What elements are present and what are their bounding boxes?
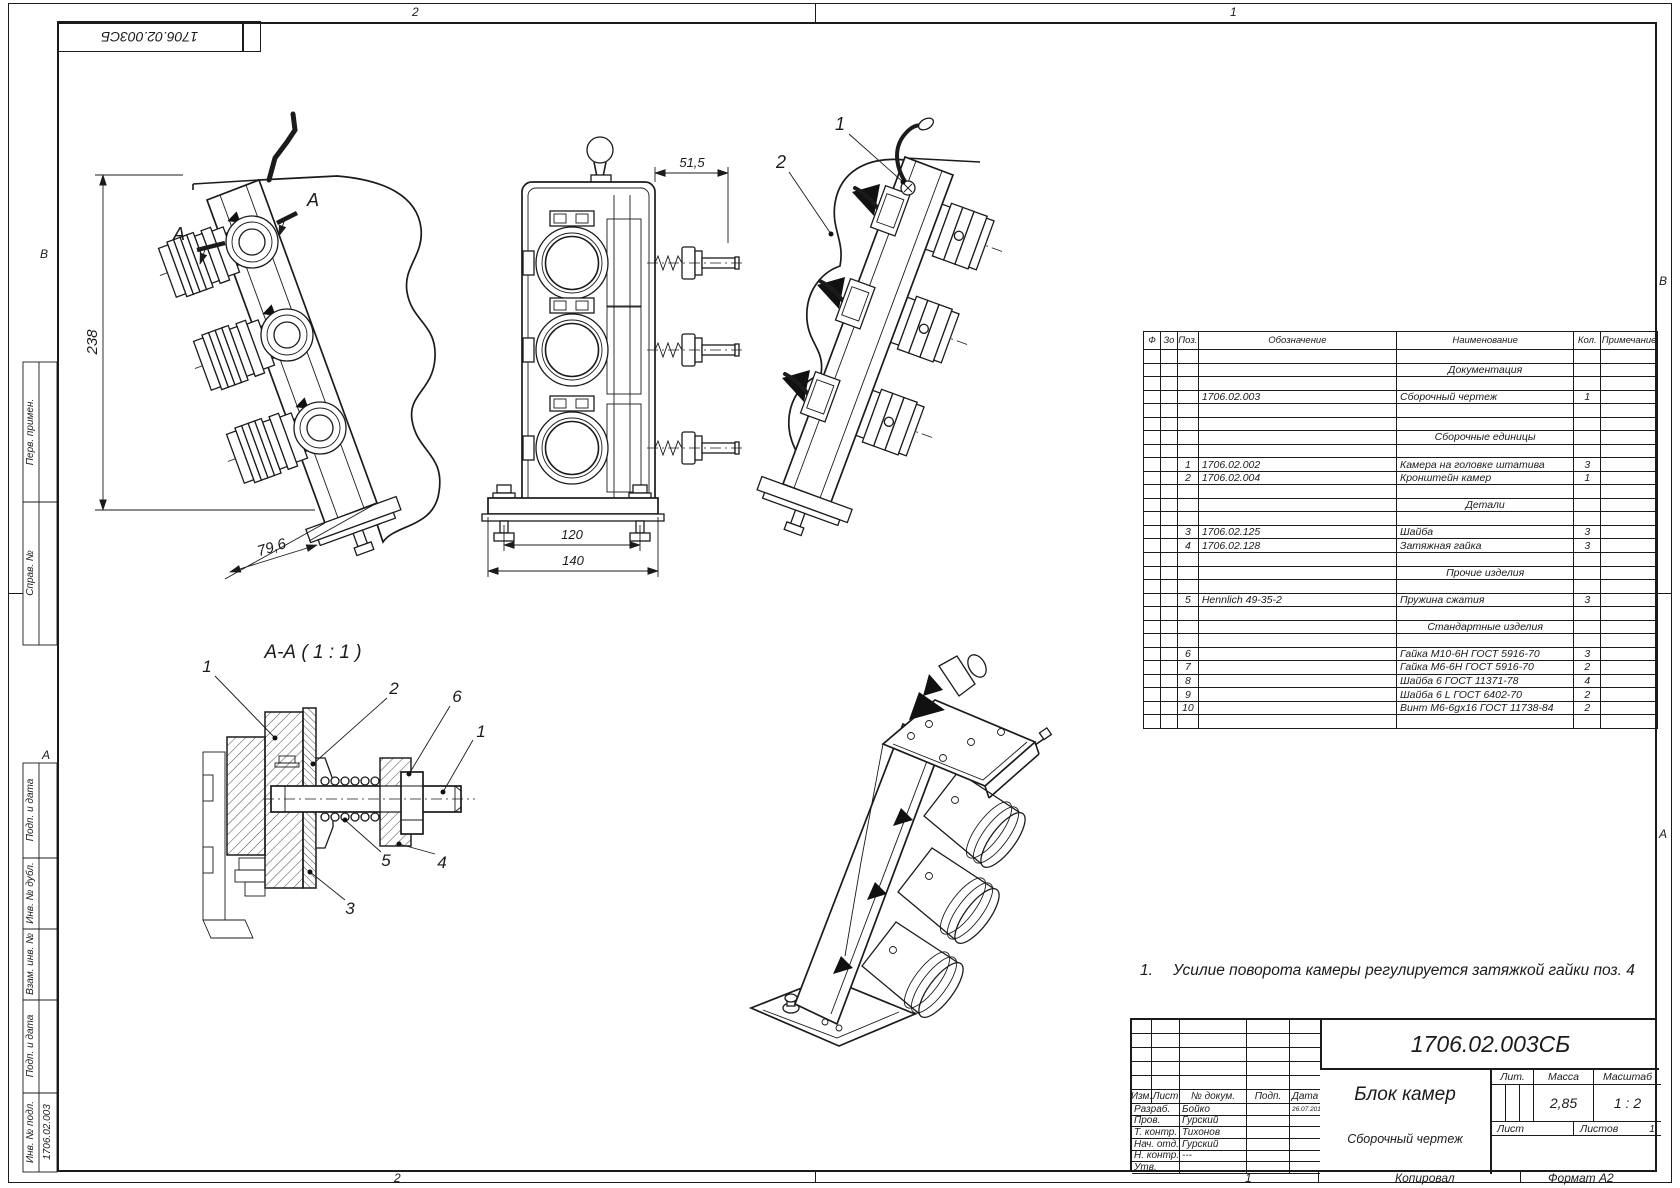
section-letter: А	[172, 224, 185, 244]
spec-cell-note	[1601, 364, 1657, 377]
title-block-empty-cell	[1180, 1062, 1247, 1076]
title-block-name-cell: ---	[1180, 1151, 1247, 1163]
spec-cell-qty	[1574, 364, 1601, 377]
spec-cell-z	[1161, 485, 1178, 498]
spec-cell-pos: 9	[1178, 688, 1199, 701]
spec-cell-qty	[1574, 553, 1601, 566]
svg-text:1: 1	[202, 657, 211, 676]
spec-cell-pos	[1178, 377, 1199, 390]
doc-number: 1706.02.003СБ	[1320, 1020, 1659, 1070]
spec-cell-z	[1161, 431, 1178, 444]
svg-text:51,5: 51,5	[679, 155, 705, 170]
spec-cell-qty: 1	[1574, 391, 1601, 404]
title-block-name-cell: Тихонов	[1180, 1127, 1247, 1139]
svg-text:Подп. и дата: Подп. и дата	[25, 1014, 36, 1077]
spec-cell-desig	[1199, 512, 1397, 525]
spec-cell-note	[1601, 634, 1657, 647]
spec-cell-desig	[1199, 364, 1397, 377]
spec-cell-z	[1161, 512, 1178, 525]
title-block-podp-cell	[1247, 1151, 1290, 1163]
spec-cell-qty	[1574, 567, 1601, 580]
spec-row	[1144, 580, 1657, 594]
note-number: 1.	[1140, 962, 1153, 980]
svg-text:Инв. № дубл.: Инв. № дубл.	[24, 862, 36, 924]
svg-text:1: 1	[835, 114, 845, 134]
spec-cell-note	[1601, 648, 1657, 661]
spec-cell-note	[1601, 607, 1657, 620]
sheets-label: Листов	[1580, 1123, 1618, 1135]
spec-row: 9Шайба 6 L ГОСТ 6402-702	[1144, 688, 1657, 702]
spec-cell-desig: 1706.02.125	[1199, 526, 1397, 539]
spec-cell-desig: 1706.02.003	[1199, 391, 1397, 404]
spec-cell-name	[1397, 377, 1574, 390]
spec-col-note: Примечание	[1601, 332, 1657, 349]
spec-cell-pos	[1178, 580, 1199, 593]
spec-cell-desig	[1199, 350, 1397, 363]
spec-cell-name	[1397, 418, 1574, 431]
title-block-empty-cell	[1180, 1048, 1247, 1062]
spec-cell-qty: 3	[1574, 539, 1601, 552]
spec-cell-qty: 3	[1574, 648, 1601, 661]
spec-row: Прочие изделия	[1144, 567, 1657, 581]
spec-cell-z	[1161, 648, 1178, 661]
title-block-empty-cell	[1247, 1048, 1290, 1062]
spec-cell-pos: 1	[1178, 458, 1199, 471]
spec-cell-z	[1161, 350, 1178, 363]
svg-text:140: 140	[562, 553, 584, 568]
spec-cell-qty: 3	[1574, 458, 1601, 471]
handle-lever	[269, 114, 295, 180]
spec-cell-pos	[1178, 567, 1199, 580]
title-block-empty-cell	[1290, 1062, 1320, 1076]
svg-text:Взам. инв. №: Взам. инв. №	[25, 933, 36, 995]
product-cell: Блок камер Сборочный чертеж	[1320, 1070, 1490, 1174]
dim-51-5: 51,5	[655, 155, 728, 243]
title-block-empty-cell	[1180, 1076, 1247, 1090]
spec-cell-name: Шайба	[1397, 526, 1574, 539]
spec-cell-z	[1161, 715, 1178, 728]
spec-row: Детали	[1144, 499, 1657, 513]
spec-cell-f	[1144, 715, 1161, 728]
spec-cell-qty	[1574, 621, 1601, 634]
spec-row: 41706.02.128Затяжная гайка3	[1144, 539, 1657, 553]
title-block-role-cell: Т. контр.	[1132, 1127, 1180, 1139]
spec-cell-f	[1144, 431, 1161, 444]
title-block-sign-row: Разраб.Бойко26.07.2017	[1132, 1104, 1320, 1116]
spec-cell-note	[1601, 567, 1657, 580]
spec-cell-desig	[1199, 634, 1397, 647]
spec-cell-z	[1161, 526, 1178, 539]
spec-cell-note	[1601, 391, 1657, 404]
title-block-date-cell	[1290, 1127, 1320, 1139]
sheets-cell: Листов 1	[1574, 1122, 1661, 1136]
spec-cell-z	[1161, 594, 1178, 607]
spec-cell-name: Гайка М6-6Н ГОСТ 5916-70	[1397, 661, 1574, 674]
spec-cell-note	[1601, 418, 1657, 431]
spec-cell-name: Сборочные единицы	[1397, 431, 1574, 444]
title-block-empty-cell	[1180, 1034, 1247, 1048]
spec-cell-f	[1144, 675, 1161, 688]
title-block-empty-cell	[1132, 1076, 1152, 1090]
title-block-empty-cell	[1132, 1034, 1152, 1048]
spec-cell-desig	[1199, 404, 1397, 417]
spec-cell-qty: 2	[1574, 688, 1601, 701]
spec-cell-f	[1144, 418, 1161, 431]
title-block-empty-cell	[1152, 1062, 1180, 1076]
title-block-date-cell	[1290, 1151, 1320, 1163]
spec-table: Ф Зо Поз. Обозначение Наименование Кол. …	[1143, 331, 1658, 729]
spec-cell-desig	[1199, 431, 1397, 444]
title-block-empty-row	[1132, 1020, 1320, 1034]
spec-cell-desig	[1199, 621, 1397, 634]
spec-row	[1144, 553, 1657, 567]
spec-cell-z	[1161, 539, 1178, 552]
svg-text:1: 1	[476, 722, 485, 741]
note: 1. Усилие поворота камеры регулируется з…	[1140, 962, 1680, 980]
scale-value: 1 : 2	[1594, 1085, 1661, 1122]
title-block-date-cell	[1290, 1139, 1320, 1151]
view-front: 51,5 120 140	[452, 125, 752, 590]
spec-cell-f	[1144, 702, 1161, 715]
svg-text:4: 4	[437, 853, 446, 872]
spec-cell-pos: 10	[1178, 702, 1199, 715]
title-block-name-cell: Гурский	[1180, 1116, 1247, 1128]
spec-cell-qty	[1574, 404, 1601, 417]
title-block-date-cell: 26.07.2017	[1290, 1104, 1320, 1116]
title-block-role-cell: Разраб.	[1132, 1104, 1180, 1116]
spec-cell-name	[1397, 512, 1574, 525]
spec-cell-note	[1601, 526, 1657, 539]
spec-cell-desig	[1199, 688, 1397, 701]
spec-cell-desig	[1199, 553, 1397, 566]
spec-row	[1144, 350, 1657, 364]
spec-row	[1144, 607, 1657, 621]
view-isometric	[733, 612, 1051, 1057]
spec-cell-f	[1144, 634, 1161, 647]
spec-col-zone: Зо	[1161, 332, 1178, 349]
view-side-right: 1 2	[745, 98, 1057, 558]
spec-cell-name: Пружина сжатия	[1397, 594, 1574, 607]
title-block-sign-row: Пров.Гурский	[1132, 1116, 1320, 1128]
spec-cell-f	[1144, 364, 1161, 377]
title-block-podp-cell	[1247, 1104, 1290, 1116]
spec-cell-desig: 1706.02.004	[1199, 472, 1397, 485]
zone-number: 2	[412, 5, 419, 19]
view-side-left: А А 238 79,6	[85, 100, 455, 605]
title-block-empty-cell	[1180, 1020, 1247, 1034]
spec-row	[1144, 418, 1657, 432]
spec-cell-f	[1144, 485, 1161, 498]
spec-cell-z	[1161, 404, 1178, 417]
dim-140: 140	[488, 517, 658, 577]
spec-cell-z	[1161, 567, 1178, 580]
spec-cell-name: Сборочный чертеж	[1397, 391, 1574, 404]
spec-cell-f	[1144, 661, 1161, 674]
spec-cell-qty	[1574, 377, 1601, 390]
spec-row	[1144, 404, 1657, 418]
spec-cell-pos	[1178, 553, 1199, 566]
spec-cell-z	[1161, 688, 1178, 701]
spec-row: 31706.02.125Шайба3	[1144, 526, 1657, 540]
spec-cell-name: Винт М6-6gx16 ГОСТ 11738-84	[1397, 702, 1574, 715]
title-block-role-cell: Н. контр.	[1132, 1151, 1180, 1163]
spec-cell-pos	[1178, 621, 1199, 634]
spec-cell-z	[1161, 418, 1178, 431]
spec-cell-z	[1161, 634, 1178, 647]
drawing-sheet: 2 1 2 1 В А В А Копировал Формат А2 1706…	[0, 0, 1680, 1188]
spec-cell-name: Детали	[1397, 499, 1574, 512]
spec-cell-qty: 1	[1574, 472, 1601, 485]
spec-cell-z	[1161, 661, 1178, 674]
spec-row	[1144, 377, 1657, 391]
zone-tick-top	[815, 3, 816, 22]
title-block-role-cell: Утв.	[1132, 1162, 1180, 1174]
spec-cell-pos	[1178, 512, 1199, 525]
spec-cell-desig	[1199, 675, 1397, 688]
spec-cell-name: Камера на головке штатива	[1397, 458, 1574, 471]
zone-letter: В	[1659, 274, 1667, 288]
spec-cell-f	[1144, 445, 1161, 458]
corner-stamp-extra	[243, 21, 261, 52]
spec-col-qty: Кол.	[1574, 332, 1601, 349]
title-block-empty-cell	[1132, 1048, 1152, 1062]
svg-text:1706.02.003: 1706.02.003	[42, 1104, 53, 1160]
spec-cell-z	[1161, 445, 1178, 458]
spec-cell-pos	[1178, 485, 1199, 498]
spec-cell-qty: 2	[1574, 702, 1601, 715]
title-block-signature-rows: Разраб.Бойко26.07.2017Пров.ГурскийТ. кон…	[1132, 1104, 1320, 1174]
title-block-empty-row	[1132, 1062, 1320, 1076]
title-block-podp-cell	[1247, 1127, 1290, 1139]
spec-cell-note	[1601, 499, 1657, 512]
spec-cell-desig	[1199, 580, 1397, 593]
svg-text:2: 2	[388, 679, 399, 698]
spec-cell-desig	[1199, 661, 1397, 674]
spec-cell-name	[1397, 715, 1574, 728]
spec-cell-note	[1601, 485, 1657, 498]
zone-tick-bottom	[815, 1172, 816, 1183]
view-section-aa: А-А ( 1 : 1 )	[175, 590, 515, 960]
spec-cell-name: Шайба 6 L ГОСТ 6402-70	[1397, 688, 1574, 701]
zone-number: 1	[1230, 5, 1237, 19]
spec-cell-z	[1161, 553, 1178, 566]
spec-row	[1144, 512, 1657, 526]
spec-cell-desig: 1706.02.128	[1199, 539, 1397, 552]
spec-cell-pos	[1178, 404, 1199, 417]
spec-cell-f	[1144, 648, 1161, 661]
spec-cell-pos	[1178, 445, 1199, 458]
spec-row: 1706.02.003Сборочный чертеж1	[1144, 391, 1657, 405]
spec-cell-pos: 2	[1178, 472, 1199, 485]
spec-cell-f	[1144, 688, 1161, 701]
spec-cell-name	[1397, 580, 1574, 593]
spec-cell-qty: 4	[1574, 675, 1601, 688]
svg-text:2: 2	[775, 152, 786, 172]
zone-letter: А	[1659, 827, 1667, 841]
spec-cell-pos: 6	[1178, 648, 1199, 661]
dim-120: 120	[504, 525, 640, 551]
spec-cell-note	[1601, 621, 1657, 634]
svg-text:5: 5	[381, 851, 391, 870]
mass-label: Масса	[1534, 1070, 1594, 1085]
title-block-empty-cell	[1290, 1076, 1320, 1090]
spec-table-rows: Документация1706.02.003Сборочный чертеж1…	[1144, 350, 1657, 728]
spec-cell-note	[1601, 512, 1657, 525]
zone-tick-right	[1657, 593, 1672, 594]
spec-cell-z	[1161, 499, 1178, 512]
svg-text:Подп. и дата: Подп. и дата	[25, 778, 36, 841]
spec-row	[1144, 634, 1657, 648]
sheet-label: Лист	[1492, 1122, 1574, 1136]
spec-col-name: Наименование	[1397, 332, 1574, 349]
svg-text:120: 120	[561, 527, 583, 542]
section-title: А-А ( 1 : 1 )	[263, 642, 361, 663]
title-block-empty-cell	[1247, 1034, 1290, 1048]
spec-cell-z	[1161, 580, 1178, 593]
spec-cell-pos	[1178, 607, 1199, 620]
title-block-empty-row	[1132, 1048, 1320, 1062]
corner-stamp: 1706.02.003СБ	[57, 21, 243, 52]
spec-row: 21706.02.004Кронштейн камер1	[1144, 472, 1657, 486]
callout-2: 2	[775, 152, 834, 237]
spec-cell-qty	[1574, 445, 1601, 458]
spec-cell-pos: 8	[1178, 675, 1199, 688]
spec-cell-pos	[1178, 634, 1199, 647]
title-block-empty-cell	[1152, 1020, 1180, 1034]
spec-cell-qty	[1574, 512, 1601, 525]
title-block-empty-cell	[1152, 1076, 1180, 1090]
spec-row: 11706.02.002Камера на головке штатива3	[1144, 458, 1657, 472]
title-block-role-cell: Нач. отд.	[1132, 1139, 1180, 1151]
svg-text:79,6: 79,6	[255, 535, 289, 560]
spec-cell-qty	[1574, 485, 1601, 498]
spec-cell-desig	[1199, 485, 1397, 498]
bracket-boss	[227, 737, 265, 855]
spec-cell-name	[1397, 607, 1574, 620]
spec-cell-z	[1161, 607, 1178, 620]
title-block-podp-cell	[1247, 1162, 1290, 1174]
spec-cell-f	[1144, 377, 1161, 390]
doc-type: Сборочный чертеж	[1320, 1132, 1490, 1146]
zone-letter: В	[40, 247, 48, 261]
spec-cell-pos: 5	[1178, 594, 1199, 607]
spec-cell-pos: 7	[1178, 661, 1199, 674]
spec-cell-qty	[1574, 431, 1601, 444]
spec-cell-note	[1601, 350, 1657, 363]
spec-cell-pos: 3	[1178, 526, 1199, 539]
spec-row: 5Hennlich 49-35-2Пружина сжатия3	[1144, 594, 1657, 608]
note-text: Усилие поворота камеры регулируется затя…	[1173, 962, 1635, 980]
spec-table-header: Ф Зо Поз. Обозначение Наименование Кол. …	[1144, 332, 1657, 350]
spec-cell-f	[1144, 404, 1161, 417]
handle-knob	[587, 137, 613, 183]
section-letter: А	[306, 190, 319, 210]
spec-cell-qty	[1574, 634, 1601, 647]
spec-cell-note	[1601, 661, 1657, 674]
spec-row	[1144, 715, 1657, 728]
spec-cell-qty	[1574, 418, 1601, 431]
spec-cell-desig	[1199, 648, 1397, 661]
spec-cell-z	[1161, 377, 1178, 390]
spec-cell-name	[1397, 445, 1574, 458]
spec-row: Стандартные изделия	[1144, 621, 1657, 635]
spec-cell-desig	[1199, 499, 1397, 512]
zone-number: 2	[394, 1171, 401, 1185]
title-block-empty-cell	[1152, 1034, 1180, 1048]
spec-cell-name: Кронштейн камер	[1397, 472, 1574, 485]
spec-cell-note	[1601, 377, 1657, 390]
title-block-empty-grid	[1132, 1020, 1320, 1090]
spec-cell-pos	[1178, 418, 1199, 431]
spec-cell-name: Затяжная гайка	[1397, 539, 1574, 552]
sheets-value: 1	[1649, 1123, 1655, 1135]
spec-cell-desig: Hennlich 49-35-2	[1199, 594, 1397, 607]
spec-cell-pos	[1178, 391, 1199, 404]
spec-row: Документация	[1144, 364, 1657, 378]
spec-cell-note	[1601, 445, 1657, 458]
svg-text:Справ. №: Справ. №	[25, 550, 36, 596]
hex-nut-section	[401, 772, 423, 834]
spec-cell-pos	[1178, 499, 1199, 512]
title-block-date-cell	[1290, 1116, 1320, 1128]
spec-cell-note	[1601, 404, 1657, 417]
title-block-empty-cell	[1132, 1020, 1152, 1034]
spec-col-format: Ф	[1144, 332, 1161, 349]
spec-cell-note	[1601, 594, 1657, 607]
title-block-empty-cell	[1247, 1062, 1290, 1076]
svg-text:3: 3	[345, 899, 355, 918]
spec-cell-desig	[1199, 377, 1397, 390]
spec-cell-z	[1161, 621, 1178, 634]
spec-row	[1144, 445, 1657, 459]
spec-cell-note	[1601, 458, 1657, 471]
title-block-name-cell	[1180, 1162, 1247, 1174]
spec-cell-name	[1397, 634, 1574, 647]
spec-cell-desig: 1706.02.002	[1199, 458, 1397, 471]
mass-value: 2,85	[1534, 1085, 1594, 1122]
svg-text:238: 238	[84, 329, 101, 356]
spec-row	[1144, 485, 1657, 499]
svg-text:Перв. примен.: Перв. примен.	[25, 399, 36, 465]
spec-cell-qty	[1574, 580, 1601, 593]
spec-cell-desig	[1199, 567, 1397, 580]
spec-cell-pos	[1178, 364, 1199, 377]
spec-cell-name: Гайка М10-6Н ГОСТ 5916-70	[1397, 648, 1574, 661]
spec-cell-note	[1601, 580, 1657, 593]
title-block-empty-cell	[1290, 1034, 1320, 1048]
spec-cell-qty	[1574, 715, 1601, 728]
corner-stamp-docnumber: 1706.02.003СБ	[101, 29, 198, 45]
spec-row: 10Винт М6-6gx16 ГОСТ 11738-842	[1144, 702, 1657, 716]
spec-cell-pos	[1178, 350, 1199, 363]
spec-cell-f	[1144, 594, 1161, 607]
spec-cell-name	[1397, 404, 1574, 417]
title-block-sign-row: Т. контр.Тихонов	[1132, 1127, 1320, 1139]
spec-cell-note	[1601, 539, 1657, 552]
spec-cell-pos: 4	[1178, 539, 1199, 552]
spec-cell-z	[1161, 364, 1178, 377]
spec-cell-desig	[1199, 445, 1397, 458]
spec-cell-qty: 2	[1574, 661, 1601, 674]
spec-cell-z	[1161, 702, 1178, 715]
spec-row: 7Гайка М6-6Н ГОСТ 5916-702	[1144, 661, 1657, 675]
spec-cell-desig	[1199, 715, 1397, 728]
title-block-empty-row	[1132, 1076, 1320, 1090]
spec-cell-f	[1144, 539, 1161, 552]
spec-cell-note	[1601, 431, 1657, 444]
spec-cell-name	[1397, 553, 1574, 566]
spec-cell-f	[1144, 526, 1161, 539]
